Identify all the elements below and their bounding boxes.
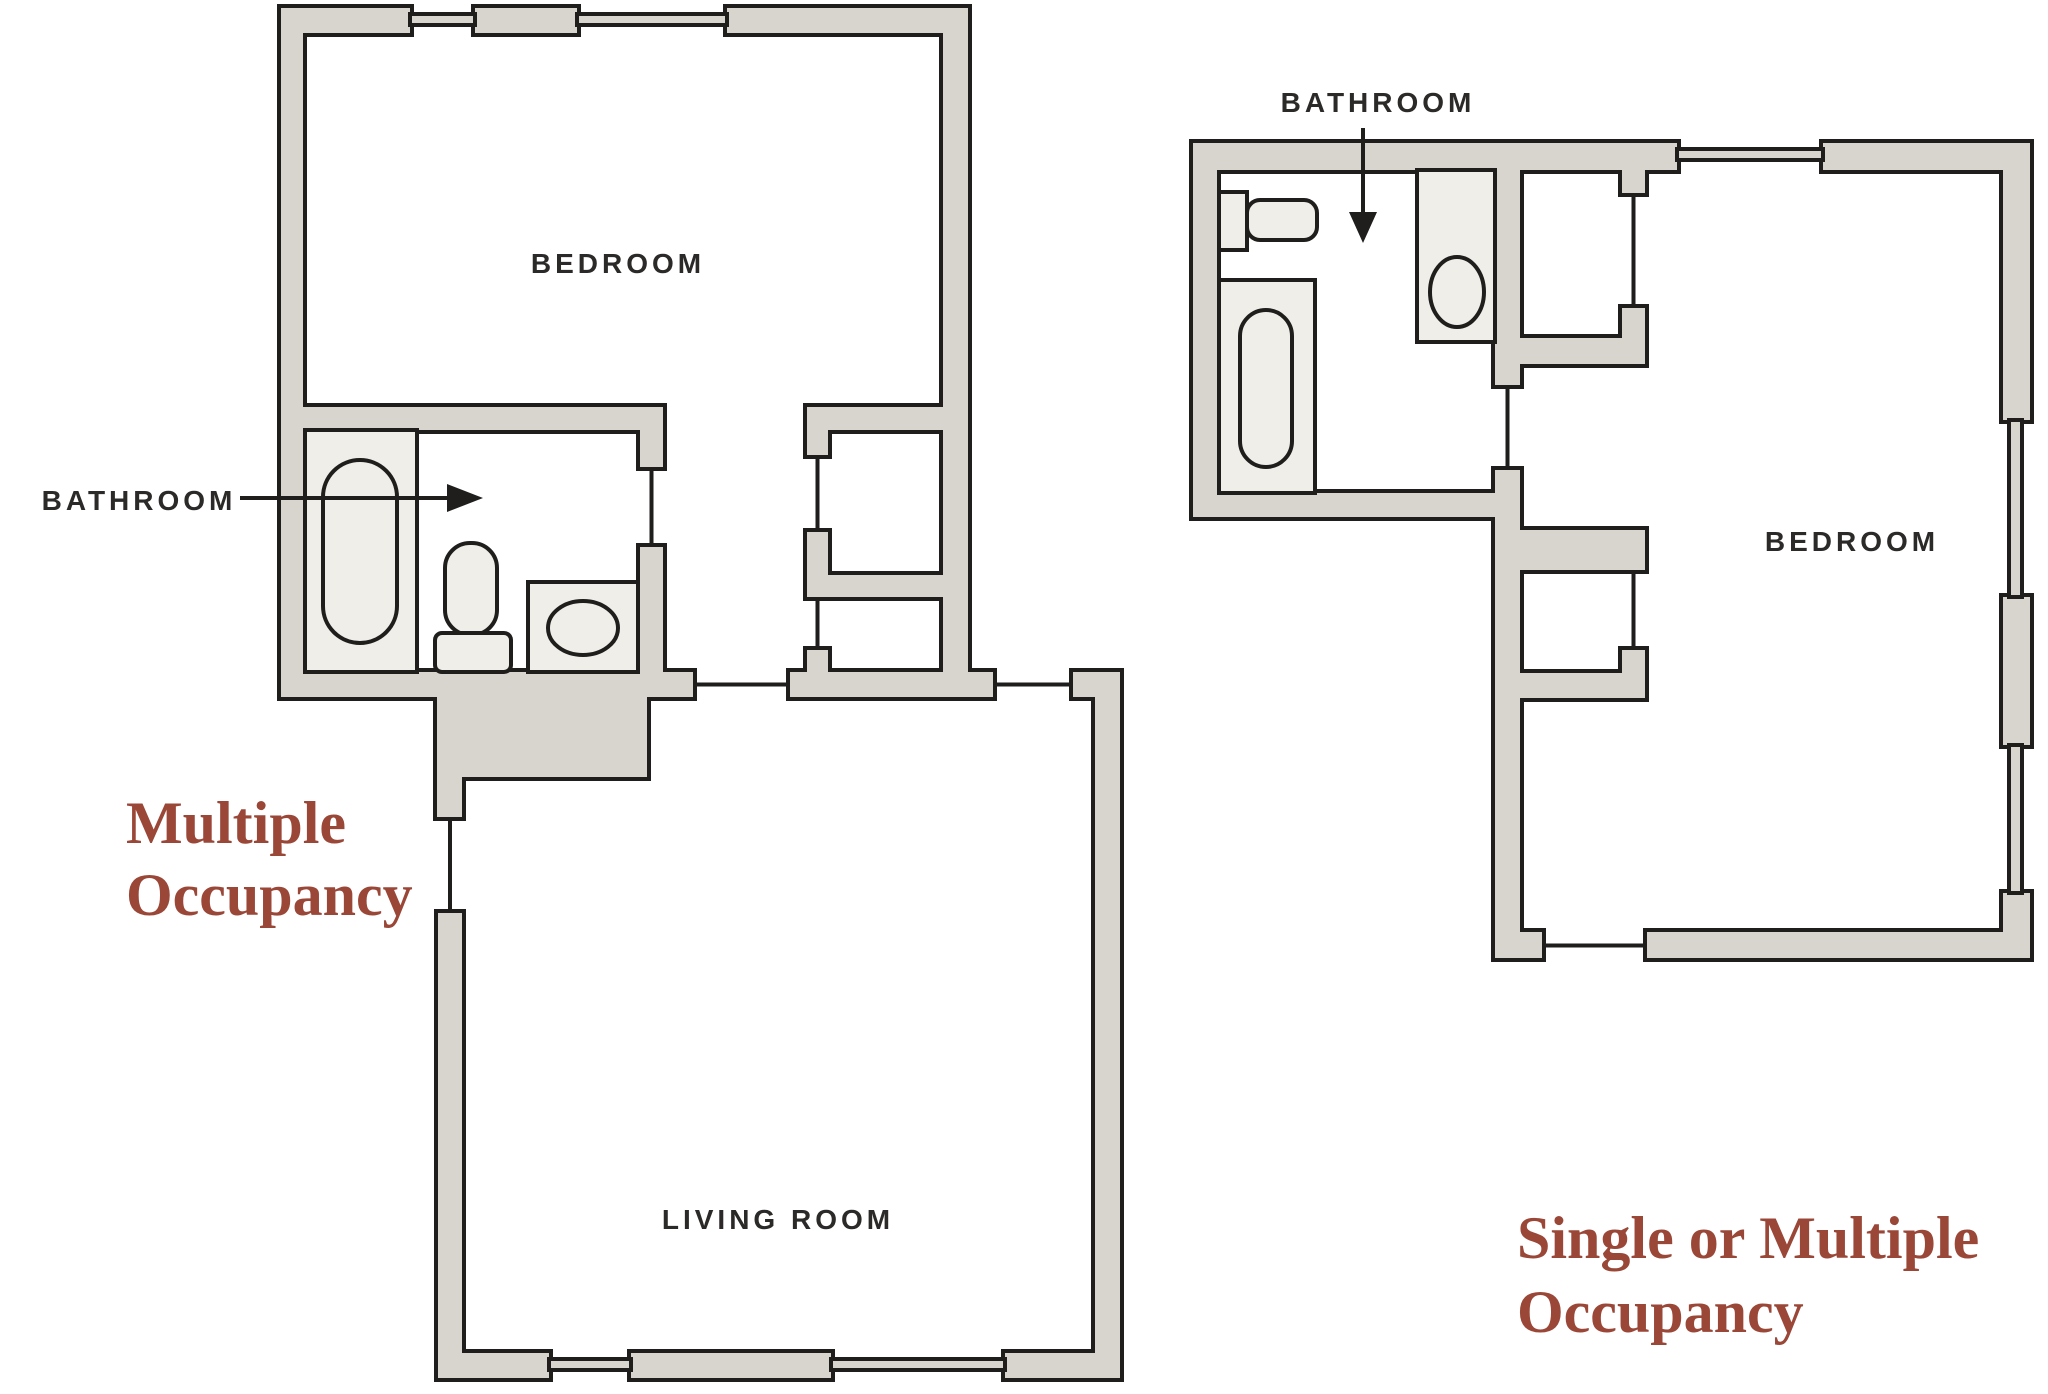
window-marker — [549, 1359, 631, 1370]
bathtub-icon — [323, 460, 397, 643]
floor-plans-canvas: BEDROOM BATHROOM LIVING ROOM Multiple Oc… — [0, 0, 2048, 1394]
toilet-base — [435, 633, 511, 672]
left-occupancy-label-line2: Occupancy — [126, 862, 413, 928]
window-marker — [2009, 745, 2022, 893]
window-marker — [577, 14, 727, 25]
window-marker — [410, 14, 475, 25]
left-bathroom-label: BATHROOM — [42, 485, 237, 516]
right-occupancy-label-line1: Single or Multiple — [1517, 1205, 1979, 1271]
living-room-label: LIVING ROOM — [662, 1204, 894, 1235]
sink-icon — [548, 601, 618, 655]
left-bedroom-label: BEDROOM — [531, 248, 705, 279]
right-occupancy-label-line2: Occupancy — [1517, 1279, 1804, 1345]
sink-icon — [1247, 200, 1317, 240]
left-bathroom-fixtures — [305, 430, 638, 672]
floor-plan-diagram: BEDROOM BATHROOM LIVING ROOM Multiple Oc… — [0, 0, 2048, 1394]
right-bedroom-label: BEDROOM — [1765, 526, 1939, 557]
window-marker — [831, 1359, 1005, 1370]
bathtub-icon — [1240, 310, 1292, 467]
right-bathroom-label: BATHROOM — [1281, 87, 1476, 118]
arrow-down-head — [1349, 212, 1377, 243]
left-occupancy-label-line1: Multiple — [126, 790, 346, 856]
arrow-right-head — [447, 484, 483, 512]
toilet-icon — [1430, 257, 1484, 327]
toilet-icon — [445, 543, 497, 635]
sink-mount — [1219, 192, 1247, 250]
window-marker — [1677, 149, 1823, 160]
window-marker — [2009, 420, 2022, 597]
